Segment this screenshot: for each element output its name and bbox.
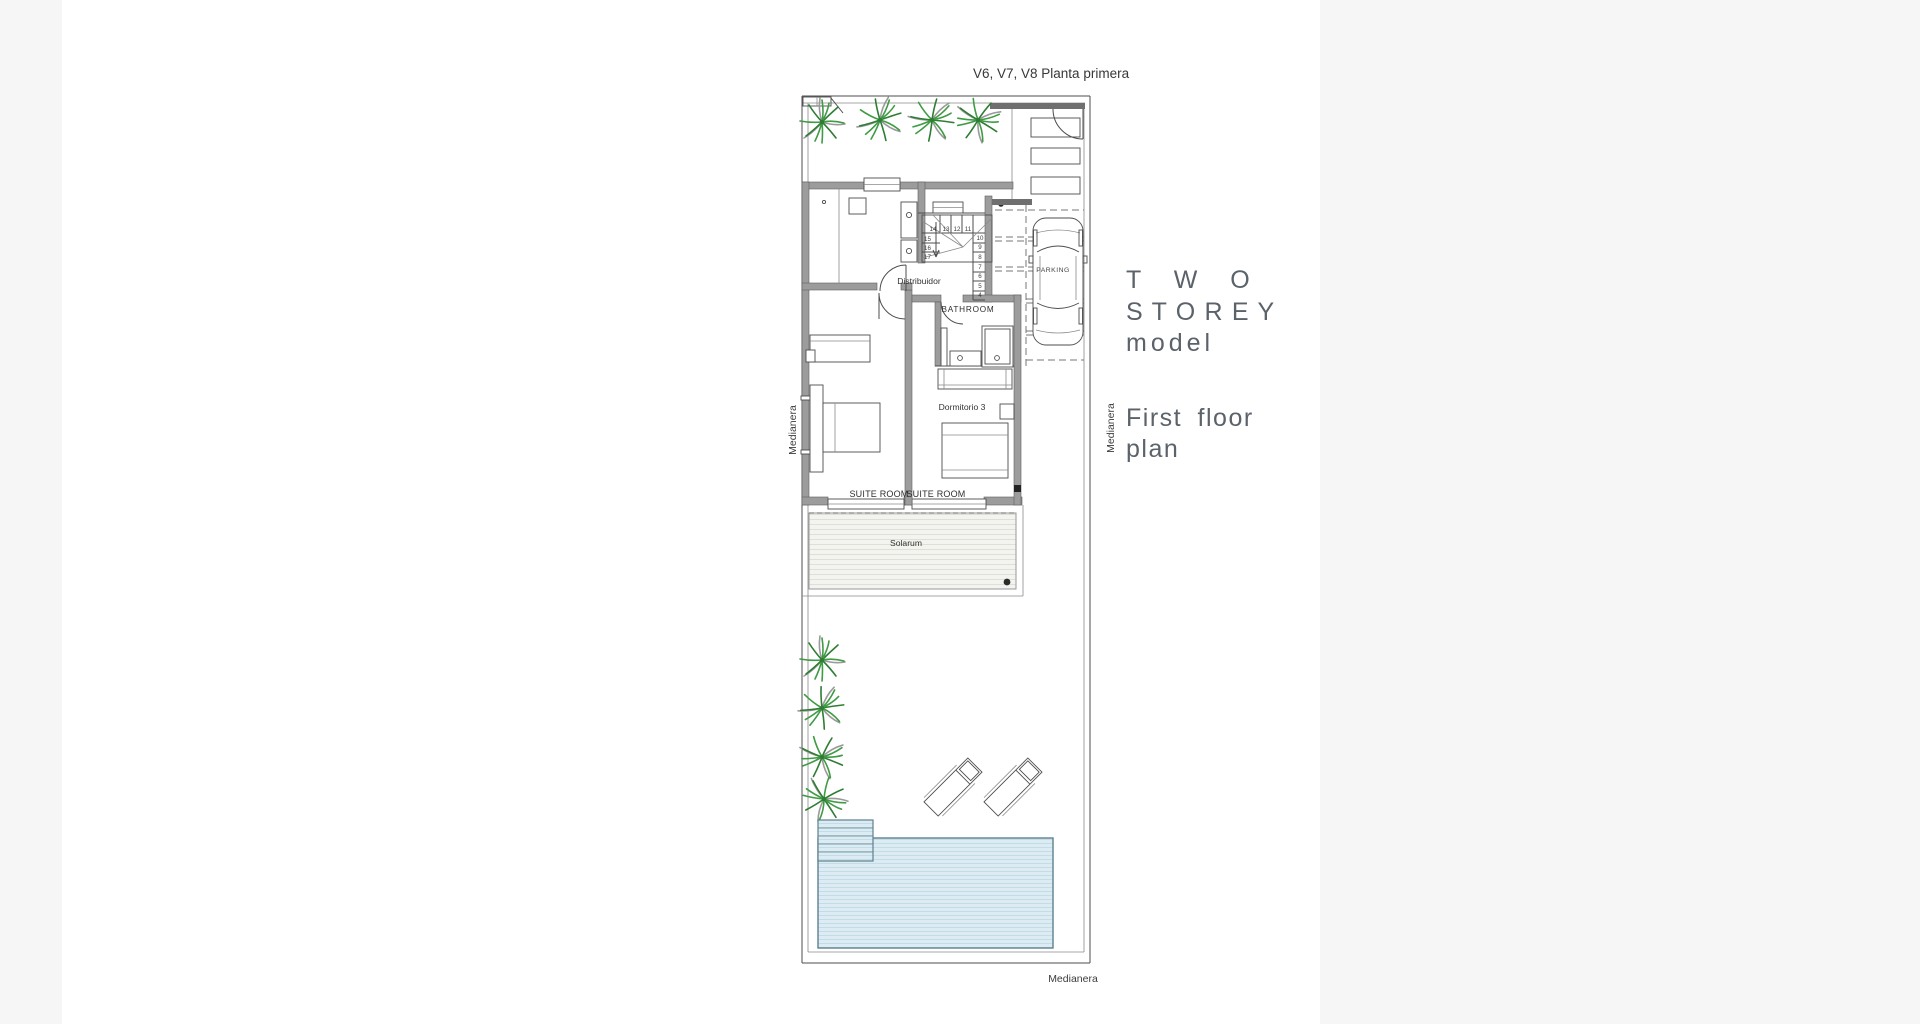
room-label-dormitorio-3: Dormitorio 3 [939, 402, 986, 412]
stair-number: 4 [978, 292, 982, 299]
car-icon [1029, 218, 1087, 345]
window [933, 202, 963, 213]
stair-number: 15 [924, 236, 931, 243]
floor-plan-drawing: 14 13 12 11 15 16 17 10 9 8 7 6 5 4 [0, 0, 1920, 1024]
radiator [941, 328, 947, 366]
caption-two: T W O [1126, 266, 1263, 294]
bedroom-dormitorio-3 [938, 369, 1014, 478]
door-swing-arc [879, 293, 905, 319]
bathtub [982, 326, 1013, 367]
bed [942, 423, 1008, 478]
caption-plan: plan [1126, 435, 1179, 463]
cabinet [849, 198, 866, 214]
washbasin [950, 351, 981, 366]
palm-tree-icon [902, 88, 965, 151]
window [828, 499, 904, 509]
nightstand [1000, 404, 1014, 419]
staircase: 14 13 12 11 15 16 17 10 9 8 7 6 5 4 [922, 215, 992, 300]
room-label-suite-left: SUITE ROOM [849, 489, 908, 499]
caption-storey: S T O R E Y [1126, 298, 1275, 326]
stair-number: 9 [978, 244, 982, 251]
swimming-pool [818, 820, 1053, 948]
room-label-suite-right: SUITE ROOM [906, 489, 965, 499]
vanity-unit [901, 202, 917, 262]
boundary-label-left: Medianera [787, 405, 799, 455]
stair-number: 6 [978, 273, 982, 280]
stair-number: 12 [954, 226, 961, 233]
window [864, 178, 900, 191]
room-label-solarium: Solarum [890, 538, 922, 548]
palm-tree-icon [800, 636, 845, 681]
caption-model: model [1126, 329, 1214, 357]
boundary-label-bottom: Medianera [1048, 973, 1098, 985]
palm-tree-icon [792, 676, 855, 739]
caption-first-floor: First floor [1126, 404, 1254, 432]
sun-lounger-icon [922, 756, 984, 818]
bed [810, 385, 880, 472]
stair-number: 13 [943, 226, 950, 233]
palm-tree-icon [794, 727, 854, 787]
room-label-parking: PARKING [1036, 267, 1070, 274]
window [912, 499, 986, 509]
column-marker [1014, 485, 1021, 492]
door-swing-arc [1053, 109, 1083, 139]
boundary-label-right: Medianera [1105, 403, 1117, 453]
palm-tree-icon [952, 93, 1007, 148]
room-label-bathroom: BATHROOM [941, 305, 994, 314]
stair-number: 11 [965, 226, 972, 233]
wardrobe [938, 369, 1012, 389]
stair-number: 5 [978, 283, 982, 290]
stair-number: 7 [978, 264, 982, 271]
page-background: 14 13 12 11 15 16 17 10 9 8 7 6 5 4 [0, 0, 1920, 1024]
stair-number: 17 [924, 254, 931, 261]
sun-lounger-icon [982, 756, 1044, 818]
palm-tree-icon [851, 89, 911, 149]
bedroom-suite-left [806, 293, 905, 472]
wardrobe [806, 335, 870, 362]
stair-number: 16 [924, 245, 931, 252]
parking-wall [992, 199, 1032, 205]
stair-number: 10 [977, 235, 984, 242]
palm-tree-icon [800, 98, 845, 143]
drawing-title: V6, V7, V8 Planta primera [973, 66, 1130, 81]
side-caption: T W O S T O R E Y model First floor plan [1126, 266, 1275, 463]
room-label-distribuidor: Distribuidor [897, 276, 941, 286]
stair-number: 8 [978, 254, 982, 261]
storage-shelves [1031, 118, 1080, 194]
street-wall [990, 103, 1085, 109]
stair-number: 14 [930, 226, 937, 233]
palm-tree-icon [799, 774, 851, 826]
solarium: Solarum [802, 505, 1023, 596]
drain-marker [1004, 579, 1011, 586]
garden [792, 636, 1053, 948]
